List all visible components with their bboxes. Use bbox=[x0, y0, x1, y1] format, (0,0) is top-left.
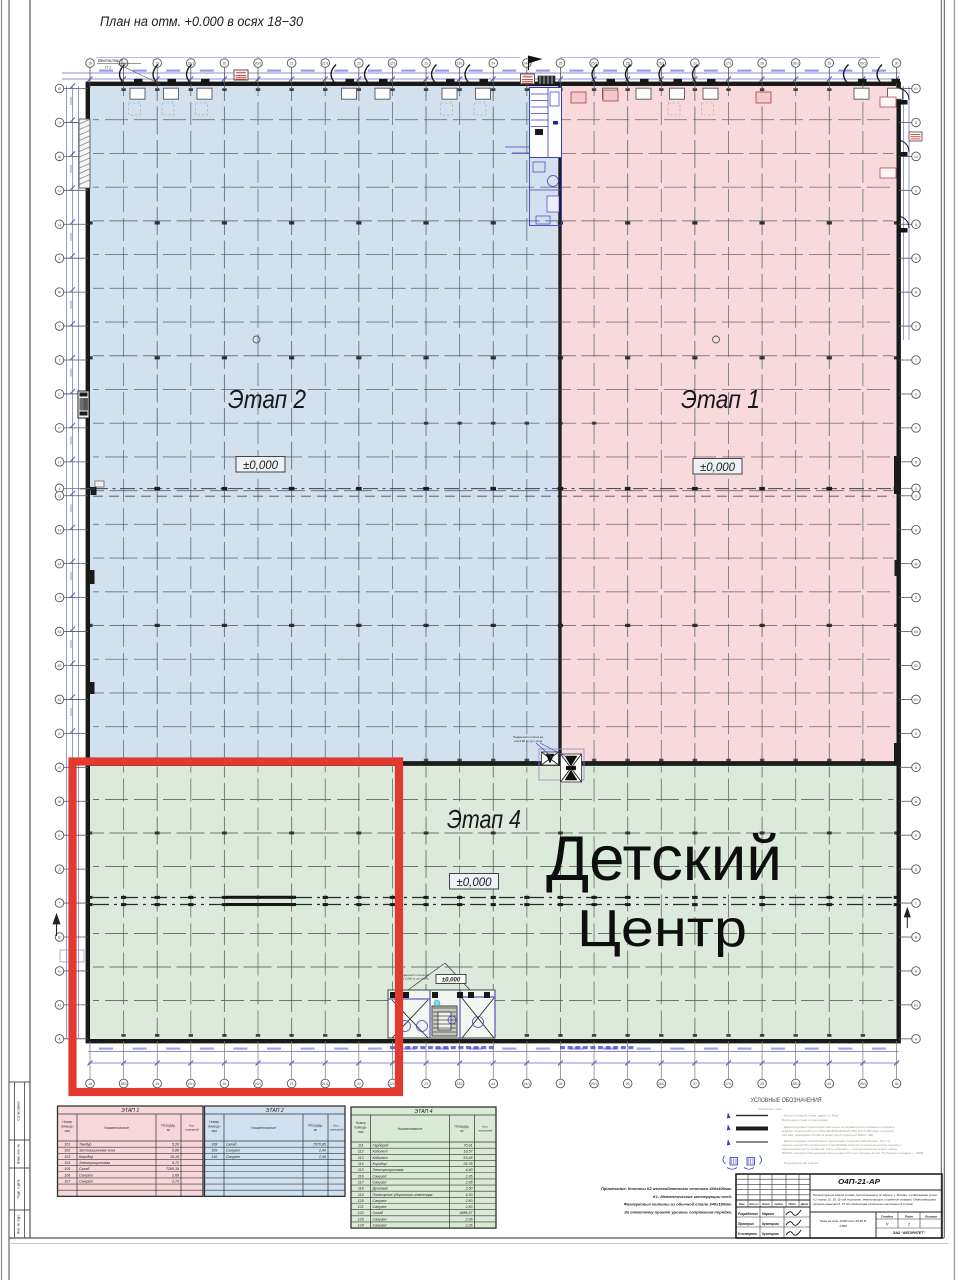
svg-text:22: 22 bbox=[357, 62, 361, 66]
svg-text:18: 18 bbox=[88, 1082, 92, 1086]
svg-text:помеще-: помеще- bbox=[208, 1125, 221, 1129]
svg-text:105: 105 bbox=[64, 1167, 70, 1171]
svg-text:Помещение уборочного инвентаря: Помещение уборочного инвентаря bbox=[373, 1193, 433, 1197]
svg-text:Инв. № подл.: Инв. № подл. bbox=[17, 1214, 21, 1234]
svg-text:К2: К2 bbox=[58, 664, 62, 668]
svg-text:помещений: помещений bbox=[185, 1128, 200, 1132]
svg-text:Согласовано: Согласовано bbox=[17, 1101, 21, 1120]
svg-text:28/1: 28/1 bbox=[792, 62, 799, 66]
svg-text:№док.: №док. bbox=[775, 1202, 784, 1206]
svg-text:114: 114 bbox=[358, 1162, 364, 1166]
svg-text:ЭТАП 2: ЭТАП 2 bbox=[266, 1108, 284, 1114]
svg-text:23/1: 23/1 bbox=[456, 1082, 463, 1086]
svg-text:К1: К1 bbox=[58, 698, 62, 702]
svg-text:План на отм. +0.000 в ося: План на отм. +0.000 в осях 18−30 bbox=[100, 14, 303, 29]
svg-text:27/1: 27/1 bbox=[725, 1082, 732, 1086]
svg-text:Ф: Ф bbox=[915, 291, 918, 295]
svg-text:Санузел: Санузел bbox=[373, 1217, 387, 1221]
svg-text:2,36: 2,36 bbox=[465, 1174, 473, 1178]
svg-text:ВОЛМА толщина оборудования пер: ВОЛМА толщина оборудования перегородки 1… bbox=[782, 1151, 923, 1155]
svg-text:План на отм. 0,000 осях 18-30: План на отм. 0,000 осях 18-30 М bbox=[820, 1219, 867, 1223]
svg-text:101: 101 bbox=[64, 1143, 70, 1147]
svg-text:103: 103 bbox=[64, 1155, 70, 1159]
svg-text:Гардероб: Гардероб bbox=[373, 1144, 390, 1148]
svg-text:Подп. и дата: Подп. и дата bbox=[17, 1179, 21, 1198]
svg-text:проемов навесной 8, 18 для дем: проемов навесной 8, 18 для демонтажа отд… bbox=[813, 1202, 914, 1206]
svg-text:5,26: 5,26 bbox=[172, 1143, 179, 1147]
svg-text:Площадь,: Площадь, bbox=[161, 1124, 176, 1128]
svg-text:М: М bbox=[915, 562, 918, 566]
svg-text:2,36: 2,36 bbox=[465, 1224, 473, 1228]
svg-text:122: 122 bbox=[358, 1211, 364, 1215]
svg-text:Санузел: Санузел bbox=[226, 1155, 240, 1159]
svg-text:Внутренняя стена и перегородки: Внутренняя стена и перегородки bbox=[782, 1118, 828, 1122]
svg-text:25: 25 bbox=[559, 1082, 563, 1086]
svg-text:70,91: 70,91 bbox=[464, 1144, 473, 1148]
svg-text:9,72: 9,72 bbox=[172, 1161, 179, 1165]
svg-text:Кирпичная стена: Кирпичная стена bbox=[758, 1107, 782, 1111]
svg-text:О: О bbox=[58, 494, 61, 498]
svg-text:2,80: 2,80 bbox=[465, 1199, 473, 1203]
svg-text:27: 27 bbox=[693, 1082, 697, 1086]
svg-text:18,16: 18,16 bbox=[170, 1155, 179, 1159]
svg-text:Санузел: Санузел bbox=[373, 1180, 387, 1184]
svg-text:Коридор: Коридор bbox=[373, 1162, 387, 1166]
svg-text:м²: м² bbox=[167, 1128, 170, 1132]
svg-text:Стадия: Стадия bbox=[881, 1215, 893, 1219]
svg-text:А1: А1 bbox=[914, 1003, 918, 1007]
svg-text:2,36: 2,36 bbox=[465, 1217, 473, 1221]
svg-text:Кол.уч: Кол.уч bbox=[749, 1202, 758, 1206]
svg-text:7070,85: 7070,85 bbox=[313, 1143, 326, 1147]
svg-text:7285,39: 7285,39 bbox=[166, 1167, 179, 1171]
svg-text:117: 117 bbox=[358, 1180, 365, 1184]
svg-text:Кол.: Кол. bbox=[334, 1124, 340, 1128]
svg-text:Санузел: Санузел bbox=[373, 1224, 387, 1228]
svg-text:Номер: Номер bbox=[356, 1121, 366, 1125]
svg-text:Листов: Листов bbox=[924, 1215, 937, 1219]
svg-text:27/1: 27/1 bbox=[725, 62, 732, 66]
svg-text:Площадь,: Площадь, bbox=[308, 1124, 323, 1128]
svg-text:м²: м² bbox=[314, 1128, 317, 1132]
svg-text:24/1: 24/1 bbox=[524, 1082, 531, 1086]
svg-text:28/1: 28/1 bbox=[792, 1082, 799, 1086]
svg-text:ЭТАП 4: ЭТАП 4 bbox=[414, 1109, 432, 1115]
svg-text:25: 25 bbox=[559, 62, 563, 66]
svg-text:4,30: 4,30 bbox=[466, 1193, 473, 1197]
svg-text:19/1: 19/1 bbox=[188, 1082, 195, 1086]
svg-text:26: 26 bbox=[626, 1082, 630, 1086]
svg-text:Санузел: Санузел bbox=[373, 1174, 387, 1178]
svg-text:К1- Металлические конструкции: К1- Металлические конструкции осей. bbox=[653, 1194, 732, 1199]
svg-text:Кузнецова: Кузнецова bbox=[762, 1232, 779, 1236]
svg-text:Санузел: Санузел bbox=[226, 1149, 240, 1153]
svg-text:К3: К3 bbox=[914, 630, 918, 634]
svg-text:Л: Л bbox=[58, 596, 60, 600]
svg-text:18: 18 bbox=[88, 62, 92, 66]
svg-text:ния: ния bbox=[212, 1129, 218, 1133]
svg-text:104: 104 bbox=[64, 1161, 70, 1165]
svg-text:124: 124 bbox=[358, 1224, 364, 1228]
svg-text:Номер: Номер bbox=[62, 1120, 72, 1124]
svg-text:Номер: Номер bbox=[209, 1120, 219, 1124]
svg-text:УСЛОВНЫЕ ОБОЗНАЧЕНИЯ: УСЛОВНЫЕ ОБОЗНАЧЕНИЯ bbox=[751, 1098, 822, 1104]
svg-text:ЗАО “АВТОРИТЕТ”: ЗАО “АВТОРИТЕТ” bbox=[893, 1231, 925, 1235]
svg-text:30: 30 bbox=[895, 62, 899, 66]
svg-text:Ш: Ш bbox=[914, 155, 917, 159]
svg-text:д.2 корпус 10, 18, 16 под торг: д.2 корпус 10, 18, 16 под торговлю, демо… bbox=[813, 1198, 936, 1202]
svg-text:120: 120 bbox=[358, 1199, 364, 1203]
svg-text:Марков: Марков bbox=[762, 1212, 774, 1216]
svg-text:116: 116 bbox=[358, 1174, 364, 1178]
svg-text:±0,000: ±0,000 bbox=[700, 462, 736, 474]
svg-text:18/1: 18/1 bbox=[120, 1082, 127, 1086]
svg-text:Вентиляция: Вентиляция bbox=[98, 58, 124, 63]
svg-text:Фахверковые колонны из обычной: Фахверковые колонны из обычной стали 340… bbox=[624, 1202, 732, 1207]
svg-text:помеще-: помеще- bbox=[61, 1125, 74, 1129]
svg-text:20/1: 20/1 bbox=[255, 62, 262, 66]
svg-text:23: 23 bbox=[424, 1082, 428, 1086]
svg-text:±0,000: ±0,000 bbox=[442, 978, 461, 984]
svg-text:Этап 4: Этап 4 bbox=[447, 804, 521, 834]
svg-text:29: 29 bbox=[827, 62, 831, 66]
svg-text:Склад: Склад bbox=[226, 1143, 236, 1147]
svg-text:123: 123 bbox=[358, 1217, 364, 1221]
svg-text:±0,000: ±0,000 bbox=[456, 877, 492, 889]
svg-text:К2: К2 bbox=[914, 664, 918, 668]
svg-text:4,40: 4,40 bbox=[466, 1168, 473, 1172]
svg-text:К1: К1 bbox=[914, 698, 918, 702]
svg-text:Разработал: Разработал bbox=[738, 1212, 758, 1216]
svg-text:2,73: 2,73 bbox=[171, 1179, 179, 1183]
svg-text:121: 121 bbox=[358, 1205, 364, 1209]
svg-text:А1: А1 bbox=[57, 1003, 61, 1007]
svg-text:Центр: Центр bbox=[577, 900, 747, 958]
svg-text:23/1: 23/1 bbox=[456, 62, 463, 66]
svg-text:Кол.: Кол. bbox=[189, 1124, 195, 1128]
svg-text:м²: м² bbox=[460, 1129, 463, 1133]
svg-text:Примечание: Колонны К2 железоб: Примечание: Колонны К2 железобетонные се… bbox=[601, 1186, 732, 1191]
svg-text:28: 28 bbox=[760, 62, 764, 66]
svg-text:Коридор: Коридор bbox=[79, 1155, 93, 1159]
svg-text:Этап 1: Этап 1 bbox=[681, 384, 760, 414]
svg-text:20: 20 bbox=[223, 1082, 227, 1086]
svg-text:23: 23 bbox=[424, 62, 428, 66]
svg-text:Склад: Склад bbox=[373, 1211, 383, 1215]
svg-text:Склад: Склад bbox=[79, 1167, 89, 1171]
svg-text:П: П bbox=[886, 1223, 889, 1227]
svg-text:113: 113 bbox=[358, 1156, 364, 1160]
svg-text:Санузел: Санузел bbox=[79, 1173, 93, 1177]
svg-text:К3: К3 bbox=[58, 630, 62, 634]
svg-text:4886,57: 4886,57 bbox=[460, 1211, 474, 1215]
svg-text:Ю: Ю bbox=[58, 87, 62, 91]
svg-text:Ф: Ф bbox=[58, 291, 61, 295]
svg-text:Ч: Ч bbox=[915, 189, 917, 193]
svg-text:Душевая: Душевая bbox=[372, 1187, 388, 1191]
svg-text:2,50: 2,50 bbox=[465, 1187, 473, 1191]
svg-text:К: К bbox=[915, 487, 917, 491]
svg-text:Наименование: Наименование bbox=[398, 1127, 423, 1131]
svg-text:19: 19 bbox=[155, 1082, 159, 1086]
svg-text:22/1: 22/1 bbox=[389, 1082, 396, 1086]
svg-text:63,46: 63,46 bbox=[464, 1156, 473, 1160]
svg-text:Детский: Детский bbox=[546, 824, 782, 894]
svg-text:Электрощитовая: Электрощитовая bbox=[373, 1168, 404, 1172]
svg-text:115: 115 bbox=[358, 1168, 364, 1172]
svg-text:Проверил: Проверил bbox=[738, 1222, 754, 1226]
svg-text:К: К bbox=[915, 732, 917, 736]
svg-text:Ш: Ш bbox=[58, 155, 61, 159]
svg-text:102: 102 bbox=[64, 1149, 70, 1153]
svg-text:106: 106 bbox=[64, 1173, 70, 1177]
svg-text:2,95: 2,95 bbox=[465, 1180, 473, 1184]
svg-text:Кол.: Кол. bbox=[482, 1125, 488, 1129]
svg-text:Площадь,: Площадь, bbox=[455, 1125, 470, 1129]
svg-text:110: 110 bbox=[211, 1155, 217, 1159]
svg-text:отм 2,50 от ур.ч.пола: отм 2,50 от ур.ч.пола bbox=[514, 739, 543, 743]
svg-text:отм 2,500 от ур.ч.пола: отм 2,500 от ур.ч.пола bbox=[400, 977, 429, 981]
svg-text:Санузел: Санузел bbox=[373, 1205, 387, 1209]
svg-text:Наименование: Наименование bbox=[104, 1126, 129, 1130]
svg-text:Дата: Дата bbox=[800, 1202, 809, 1206]
svg-text:Изм.: Изм. bbox=[739, 1202, 745, 1206]
svg-text:Кабинет: Кабинет bbox=[373, 1150, 388, 1154]
svg-text:120 мкм, армирован сеткой из а: 120 мкм, армирован сеткой из арматурной … bbox=[782, 1133, 874, 1137]
svg-text:2,40: 2,40 bbox=[318, 1149, 326, 1153]
svg-text:24: 24 bbox=[491, 62, 495, 66]
svg-text:- Трудобуруны в/в клапан: - Трудобуруны в/в клапан bbox=[782, 1161, 818, 1165]
svg-text:Реконструкция здания склада, р: Реконструкция здания склада, расположенн… bbox=[813, 1193, 937, 1197]
svg-text:20/1: 20/1 bbox=[255, 1082, 262, 1086]
svg-text:20: 20 bbox=[223, 62, 227, 66]
svg-text:Экспозиционная зона: Экспозиционная зона bbox=[79, 1149, 115, 1153]
svg-text:21/1: 21/1 bbox=[322, 62, 329, 66]
svg-text:Электрощитовая: Электрощитовая bbox=[79, 1161, 110, 1165]
svg-text:24: 24 bbox=[491, 1082, 495, 1086]
svg-text:25/1: 25/1 bbox=[591, 1082, 598, 1086]
svg-text:Кузнецова: Кузнецова bbox=[762, 1222, 779, 1226]
svg-text:П-1: П-1 bbox=[105, 66, 111, 70]
svg-text:О4П-21-АР: О4П-21-АР bbox=[838, 1177, 880, 1186]
svg-text:Наименование: Наименование bbox=[251, 1126, 276, 1130]
svg-text:29/1: 29/1 bbox=[860, 62, 867, 66]
svg-text:- Кирпичн (общая) стена, марки: - Кирпичн (общая) стена, марки 'Ст Верх' bbox=[782, 1114, 840, 1118]
svg-text:Г: Г bbox=[915, 902, 917, 906]
svg-text:1:500: 1:500 bbox=[839, 1224, 847, 1228]
svg-text:30: 30 bbox=[895, 1082, 899, 1086]
svg-text:107: 107 bbox=[64, 1179, 71, 1183]
svg-text:Этап 2: Этап 2 bbox=[228, 384, 306, 414]
svg-text:6,88: 6,88 bbox=[172, 1149, 179, 1153]
svg-text:21: 21 bbox=[290, 62, 294, 66]
svg-text:2,68: 2,68 bbox=[171, 1173, 179, 1177]
svg-text:ния: ния bbox=[65, 1129, 71, 1133]
svg-text:22: 22 bbox=[357, 1082, 361, 1086]
svg-text:19,57: 19,57 bbox=[464, 1150, 474, 1154]
svg-text:111: 111 bbox=[358, 1144, 363, 1148]
svg-text:26,78: 26,78 bbox=[463, 1162, 473, 1166]
svg-text:ЭТАП 1: ЭТАП 1 bbox=[121, 1108, 139, 1114]
svg-text:Санузел: Санузел bbox=[79, 1179, 93, 1183]
svg-text:22/1: 22/1 bbox=[389, 62, 396, 66]
svg-text:Подп.: Подп. bbox=[789, 1202, 797, 1206]
svg-text:К: К bbox=[59, 487, 61, 491]
svg-text:2,36: 2,36 bbox=[318, 1155, 326, 1159]
svg-text:Взам. инв. №: Взам. инв. № bbox=[17, 1144, 21, 1164]
svg-text:Г: Г bbox=[59, 902, 61, 906]
svg-text:К: К bbox=[59, 732, 61, 736]
svg-text:Н.контроль: Н.контроль bbox=[738, 1232, 757, 1236]
svg-text:Лист: Лист bbox=[904, 1215, 914, 1219]
svg-text:Т: Т bbox=[915, 359, 917, 363]
svg-text:28: 28 bbox=[760, 1082, 764, 1086]
svg-text:ния: ния bbox=[358, 1130, 364, 1134]
svg-text:±0,000: ±0,000 bbox=[243, 460, 279, 472]
svg-text:Т: Т bbox=[58, 359, 60, 363]
svg-text:За отметочку принят уровень со: За отметочку принят уровень сопряжения п… bbox=[624, 1209, 732, 1214]
svg-text:О: О bbox=[915, 494, 918, 498]
svg-text:109: 109 bbox=[211, 1149, 217, 1153]
svg-text:Санузел: Санузел bbox=[373, 1199, 387, 1203]
svg-text:21: 21 bbox=[290, 1082, 294, 1086]
svg-text:помещений: помещений bbox=[330, 1128, 345, 1132]
svg-text:2,83: 2,83 bbox=[465, 1205, 473, 1209]
svg-text:112: 112 bbox=[358, 1150, 364, 1154]
svg-text:29: 29 bbox=[827, 1082, 831, 1086]
svg-text:Ю: Ю bbox=[914, 87, 918, 91]
svg-text:119: 119 bbox=[358, 1193, 364, 1197]
svg-text:29/1: 29/1 bbox=[860, 1082, 867, 1086]
svg-text:помещений: помещений bbox=[478, 1129, 493, 1133]
svg-text:108: 108 bbox=[211, 1143, 217, 1147]
svg-text:118: 118 bbox=[358, 1187, 364, 1191]
svg-text:помеще-: помеще- bbox=[354, 1126, 367, 1130]
svg-text:Ч: Ч bbox=[58, 189, 60, 193]
svg-text:Тамбур: Тамбур bbox=[79, 1143, 91, 1147]
svg-text:26/1: 26/1 bbox=[658, 1082, 665, 1086]
svg-text:Кабинет: Кабинет bbox=[373, 1156, 388, 1160]
svg-text:М: М bbox=[58, 562, 61, 566]
svg-text:Лист: Лист bbox=[761, 1202, 770, 1206]
svg-text:2: 2 bbox=[907, 1223, 910, 1227]
svg-text:21/1: 21/1 bbox=[322, 1082, 329, 1086]
svg-text:Л: Л bbox=[915, 596, 917, 600]
